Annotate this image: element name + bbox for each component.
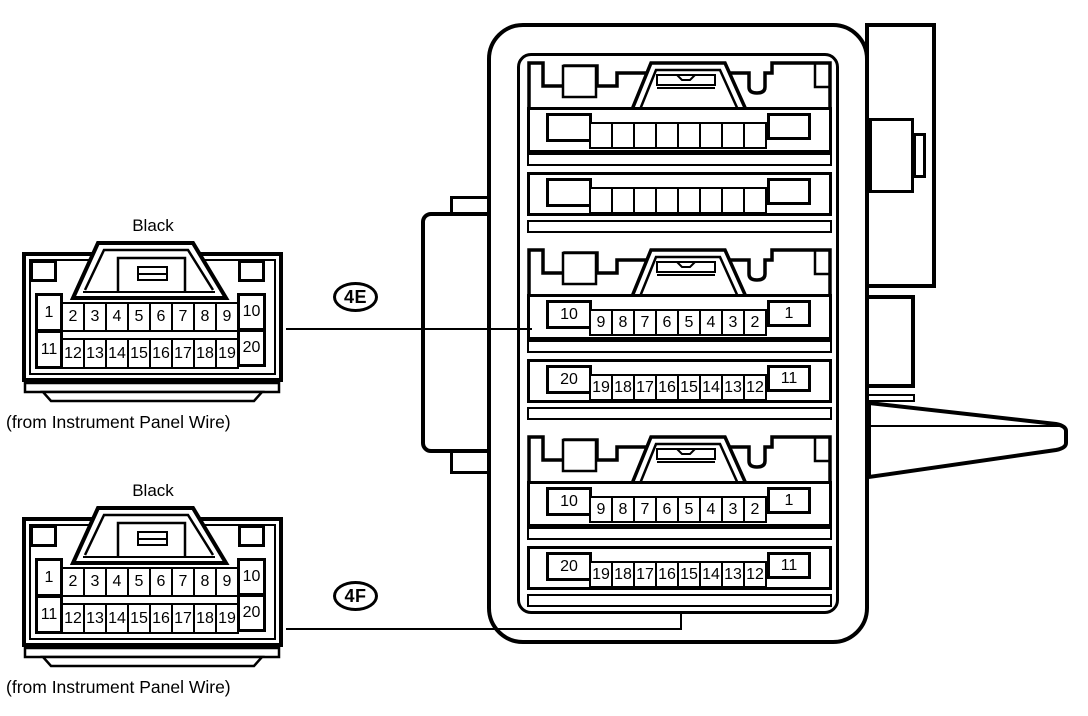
pin-cavity-large: 1	[35, 293, 63, 332]
pin-cavity: 13	[83, 338, 107, 369]
pin-cavity: 7	[633, 309, 657, 336]
bracket-tab-bottom	[450, 450, 492, 474]
pin-row: 10 98765432 1	[527, 481, 832, 527]
pin-cavity: 5	[127, 302, 151, 332]
latch-icon	[527, 434, 832, 486]
pin-cavity: 5	[677, 496, 701, 523]
pin-cavity: 5	[127, 567, 151, 597]
pin-cavity-large: 11	[35, 330, 63, 369]
pin-cavity	[699, 122, 723, 149]
pin-cavity: 18	[193, 338, 217, 369]
pin-cavity	[721, 187, 745, 214]
pin-cavity: 14	[105, 338, 129, 369]
pin-cavity	[655, 122, 679, 149]
pin-cavity: 2	[743, 309, 767, 336]
pin-cavity: 8	[193, 302, 217, 332]
pin-cavity: 2	[61, 302, 85, 332]
pin-cavity	[743, 122, 767, 149]
pin-cavity: 19	[215, 603, 239, 634]
pin-cavity: 6	[655, 309, 679, 336]
pin-cavity-large: 20	[237, 594, 266, 632]
pin-cavity: 15	[127, 603, 151, 634]
pin-cavity: 19	[215, 338, 239, 369]
pin-cavity-large: 10	[546, 487, 592, 516]
mounting-bracket-wedge	[860, 398, 1075, 483]
pin-cavity-row	[589, 187, 767, 214]
pin-cavity	[611, 187, 635, 214]
mounting-boss	[865, 295, 915, 388]
pin-cavity: 9	[589, 309, 613, 336]
pin-cavity: 6	[655, 496, 679, 523]
pin-cavity-row	[589, 122, 767, 149]
pin-cavity-large: 11	[35, 595, 63, 634]
junction-block-connector: 10 98765432 1 20 1918171615141312 11	[487, 23, 869, 644]
pin-cavity: 14	[699, 374, 723, 401]
pin-cavity-large: 1	[767, 487, 811, 514]
connector-4f: Black 1 23456789 10 11 1213141516171819 …	[22, 481, 284, 701]
pin-cavity: 8	[611, 309, 635, 336]
pin-cavity	[699, 187, 723, 214]
pin-cavity: 2	[61, 567, 85, 597]
pin-cavity: 12	[61, 603, 85, 634]
pin-cavity: 3	[721, 309, 745, 336]
pin-cavity: 17	[171, 338, 195, 369]
pin-cavity: 17	[171, 603, 195, 634]
callout-4f-label: 4F	[344, 586, 366, 607]
pin-cavity-large	[546, 178, 592, 207]
pin-cavity: 13	[721, 374, 745, 401]
pin-cavity-row: 1213141516171819	[61, 338, 239, 369]
pin-cavity-large: 1	[35, 558, 63, 597]
latch-icon	[67, 240, 232, 300]
divider-strip	[527, 153, 832, 166]
pin-cavity: 5	[677, 309, 701, 336]
pin-cavity-large: 11	[767, 365, 811, 392]
flange-clip	[869, 118, 914, 193]
callout-4e-badge: 4E	[333, 282, 378, 312]
pin-cavity	[655, 187, 679, 214]
latch-icon	[527, 60, 832, 112]
callout-4e-line	[286, 328, 532, 330]
pin-cavity	[743, 187, 767, 214]
housing-corner-right	[238, 525, 265, 547]
pin-cavity	[633, 122, 657, 149]
pin-cavity: 7	[171, 567, 195, 597]
latch-icon	[67, 505, 232, 565]
pin-cavity	[677, 187, 701, 214]
connector-source-caption: (from Instrument Panel Wire)	[6, 412, 306, 433]
connector-4e: Black 1 23456789 10 11 1213141516171819 …	[22, 216, 284, 436]
latch-icon	[527, 247, 832, 299]
pin-cavity-large: 11	[767, 552, 811, 579]
pin-cavity-row: 1213141516171819	[61, 603, 239, 634]
pin-cavity: 6	[149, 567, 173, 597]
side-bracket	[421, 212, 493, 453]
pin-cavity-large: 20	[546, 365, 592, 394]
pin-cavity-large	[767, 113, 811, 140]
pin-cavity: 12	[743, 374, 767, 401]
connector-skirt	[22, 382, 283, 404]
pin-cavity-large: 10	[546, 300, 592, 329]
flange-clip-tab	[913, 133, 926, 178]
callout-4f-line	[286, 628, 682, 630]
housing-corner-left	[30, 525, 57, 547]
connector-skirt	[22, 647, 283, 669]
pin-cavity: 13	[83, 603, 107, 634]
pin-row	[527, 172, 832, 216]
pin-cavity: 15	[677, 561, 701, 588]
pin-cavity: 18	[611, 374, 635, 401]
pin-cavity: 9	[589, 496, 613, 523]
pin-cavity: 8	[193, 567, 217, 597]
pin-row	[527, 107, 832, 153]
pin-cavity-row: 1918171615141312	[589, 561, 767, 588]
pin-cavity-large: 20	[237, 329, 266, 367]
pin-cavity	[633, 187, 657, 214]
pin-cavity: 8	[611, 496, 635, 523]
cavity-section-4f: 10 98765432 1 20 1918171615141312 11	[527, 434, 832, 609]
connector-source-caption: (from Instrument Panel Wire)	[6, 677, 306, 698]
pin-cavity: 7	[171, 302, 195, 332]
pin-cavity: 4	[105, 302, 129, 332]
pin-cavity: 3	[83, 302, 107, 332]
pin-cavity-large: 10	[237, 558, 266, 596]
pin-cavity: 3	[721, 496, 745, 523]
cavity-section-top	[527, 60, 832, 235]
pin-row: 10 98765432 1	[527, 294, 832, 340]
pin-cavity: 4	[699, 496, 723, 523]
pin-cavity: 12	[61, 338, 85, 369]
pin-cavity: 6	[149, 302, 173, 332]
divider-strip	[527, 594, 832, 607]
pin-cavity: 7	[633, 496, 657, 523]
callout-4f-badge: 4F	[333, 581, 378, 611]
pin-cavity	[611, 122, 635, 149]
pin-cavity-large: 10	[237, 293, 266, 331]
pin-cavity-row: 98765432	[589, 309, 767, 336]
pin-cavity-large	[546, 113, 592, 142]
divider-strip	[527, 527, 832, 540]
pin-cavity: 17	[633, 374, 657, 401]
pin-cavity: 17	[633, 561, 657, 588]
pin-cavity: 18	[611, 561, 635, 588]
connector-color-label: Black	[22, 481, 284, 501]
pin-cavity: 12	[743, 561, 767, 588]
pin-cavity	[677, 122, 701, 149]
pin-cavity-row: 23456789	[61, 302, 239, 332]
pin-cavity: 2	[743, 496, 767, 523]
pin-row: 20 1918171615141312 11	[527, 546, 832, 590]
pin-cavity: 4	[699, 309, 723, 336]
pin-cavity: 16	[655, 374, 679, 401]
pin-cavity: 16	[655, 561, 679, 588]
pin-cavity: 15	[127, 338, 151, 369]
pin-cavity-row: 23456789	[61, 567, 239, 597]
pin-cavity-row: 1918171615141312	[589, 374, 767, 401]
divider-strip	[527, 340, 832, 353]
pin-cavity-large: 1	[767, 300, 811, 327]
pin-cavity: 19	[589, 561, 613, 588]
pin-cavity: 4	[105, 567, 129, 597]
pin-cavity	[721, 122, 745, 149]
pin-cavity: 16	[149, 338, 173, 369]
connector-color-label: Black	[22, 216, 284, 236]
cavity-section-4e: 10 98765432 1 20 1918171615141312 11	[527, 247, 832, 422]
wiring-connector-diagram: 10 98765432 1 20 1918171615141312 11	[0, 0, 1088, 716]
pin-cavity	[589, 187, 613, 214]
pin-cavity: 3	[83, 567, 107, 597]
pin-cavity: 18	[193, 603, 217, 634]
pin-cavity: 9	[215, 302, 239, 332]
housing-corner-right	[238, 260, 265, 282]
pin-cavity: 14	[699, 561, 723, 588]
callout-4e-label: 4E	[344, 287, 367, 308]
divider-strip	[527, 407, 832, 420]
pin-cavity: 9	[215, 567, 239, 597]
callout-4f-line-vertical	[680, 611, 682, 630]
pin-cavity	[589, 122, 613, 149]
housing-corner-left	[30, 260, 57, 282]
pin-cavity: 14	[105, 603, 129, 634]
pin-row: 20 1918171615141312 11	[527, 359, 832, 403]
pin-cavity-row: 98765432	[589, 496, 767, 523]
pin-cavity: 15	[677, 374, 701, 401]
pin-cavity-large: 20	[546, 552, 592, 581]
divider-strip	[527, 220, 832, 233]
pin-cavity: 13	[721, 561, 745, 588]
pin-cavity: 16	[149, 603, 173, 634]
pin-cavity: 19	[589, 374, 613, 401]
pin-cavity-large	[767, 178, 811, 205]
